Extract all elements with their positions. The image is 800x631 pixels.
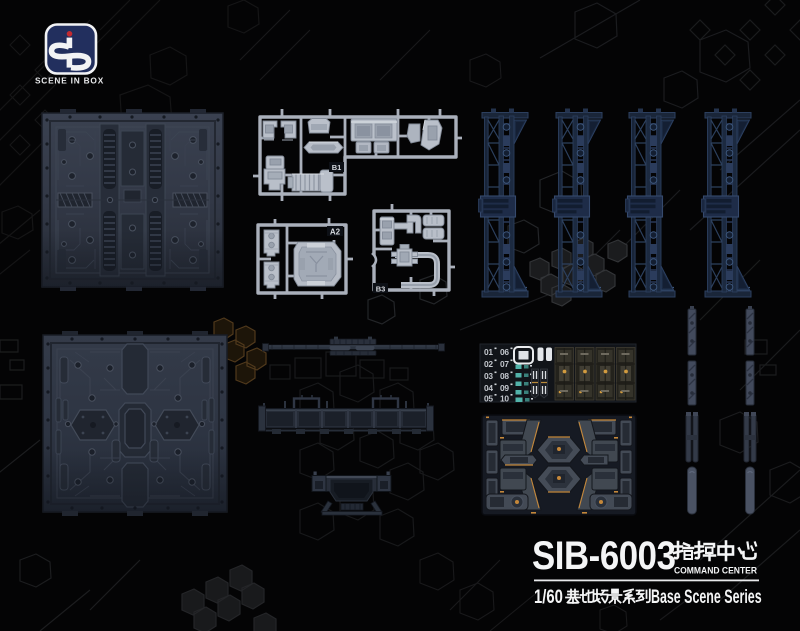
svg-text:10: 10 — [500, 394, 509, 404]
svg-text:09: 09 — [500, 383, 509, 393]
svg-text:COMMAND CENTER: COMMAND CENTER — [674, 565, 758, 575]
svg-text:SIB-6003: SIB-6003 — [532, 533, 676, 578]
svg-text:B1: B1 — [332, 163, 342, 172]
svg-text:Base Scene Series: Base Scene Series — [651, 586, 762, 607]
svg-text:A2: A2 — [330, 228, 341, 237]
svg-text:05: 05 — [484, 394, 493, 404]
svg-text:07: 07 — [500, 359, 509, 369]
svg-text:1/60: 1/60 — [534, 586, 563, 607]
svg-text:01: 01 — [484, 347, 493, 357]
svg-text:02: 02 — [484, 359, 493, 369]
svg-text:08: 08 — [500, 371, 509, 381]
svg-text:06: 06 — [500, 347, 509, 357]
svg-text:04: 04 — [484, 383, 493, 393]
svg-text:03: 03 — [484, 371, 493, 381]
svg-text:B3: B3 — [376, 285, 386, 294]
svg-text:SCENE IN BOX: SCENE IN BOX — [35, 76, 104, 86]
